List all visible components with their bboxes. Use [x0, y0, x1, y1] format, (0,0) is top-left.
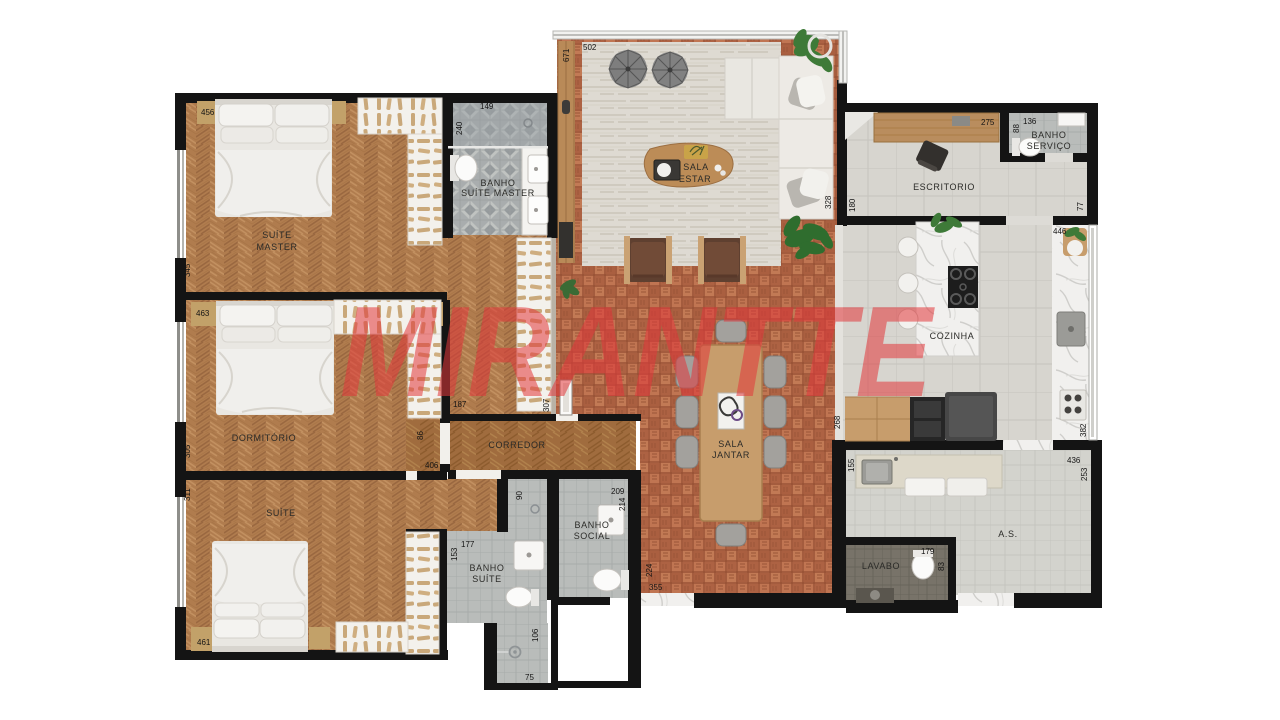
- svg-text:155: 155: [847, 458, 856, 472]
- svg-text:214: 214: [618, 497, 627, 511]
- svg-text:461: 461: [197, 638, 211, 647]
- svg-text:DORMITÓRIO: DORMITÓRIO: [232, 433, 297, 443]
- svg-text:SALA: SALA: [683, 162, 708, 172]
- svg-text:SOCIAL: SOCIAL: [574, 531, 611, 541]
- svg-text:671: 671: [562, 48, 571, 62]
- svg-text:436: 436: [1067, 456, 1081, 465]
- svg-text:MASTER: MASTER: [256, 242, 297, 252]
- svg-text:A.S.: A.S.: [998, 529, 1017, 539]
- svg-text:305: 305: [183, 444, 192, 458]
- svg-text:83: 83: [937, 562, 946, 571]
- svg-text:382: 382: [1079, 423, 1088, 437]
- svg-text:SUÍTE: SUÍTE: [262, 230, 292, 240]
- svg-text:253: 253: [1080, 467, 1089, 481]
- svg-text:SERVIÇO: SERVIÇO: [1027, 141, 1072, 151]
- svg-text:ESCRITORIO: ESCRITORIO: [913, 182, 975, 192]
- svg-text:JANTAR: JANTAR: [712, 450, 750, 460]
- svg-text:240: 240: [455, 121, 464, 135]
- svg-text:209: 209: [611, 487, 625, 496]
- svg-text:LAVABO: LAVABO: [862, 561, 900, 571]
- svg-text:153: 153: [450, 547, 459, 561]
- svg-text:275: 275: [981, 118, 995, 127]
- svg-text:SALA: SALA: [718, 439, 743, 449]
- svg-text:345: 345: [183, 263, 192, 277]
- svg-text:136: 136: [1023, 117, 1037, 126]
- svg-text:BANHO: BANHO: [469, 563, 504, 573]
- svg-text:86: 86: [416, 431, 425, 440]
- svg-text:179: 179: [921, 547, 935, 556]
- svg-text:88: 88: [1012, 124, 1021, 133]
- svg-text:355: 355: [649, 583, 663, 592]
- svg-text:446: 446: [1053, 227, 1067, 236]
- svg-text:406: 406: [425, 461, 439, 470]
- svg-text:311: 311: [183, 488, 192, 501]
- svg-text:SUÍTE: SUÍTE: [472, 574, 502, 584]
- svg-text:149: 149: [480, 102, 494, 111]
- svg-text:502: 502: [583, 43, 597, 52]
- svg-text:328: 328: [824, 195, 833, 209]
- svg-text:177: 177: [461, 540, 475, 549]
- svg-text:BANHO: BANHO: [480, 178, 515, 188]
- svg-text:463: 463: [196, 309, 210, 318]
- svg-text:77: 77: [1076, 202, 1085, 211]
- svg-text:SUÍTE MASTER: SUÍTE MASTER: [461, 188, 535, 198]
- svg-text:75: 75: [525, 673, 534, 682]
- svg-text:90: 90: [515, 491, 524, 500]
- svg-text:SUÍTE: SUÍTE: [266, 508, 296, 518]
- svg-text:106: 106: [531, 628, 540, 642]
- svg-text:BANHO: BANHO: [1031, 130, 1066, 140]
- svg-text:ESTAR: ESTAR: [679, 174, 711, 184]
- svg-text:CORREDOR: CORREDOR: [488, 440, 545, 450]
- svg-text:MIRANTTE: MIRANTTE: [340, 280, 936, 424]
- svg-text:456: 456: [201, 108, 215, 117]
- svg-text:224: 224: [645, 563, 654, 577]
- svg-text:180: 180: [848, 198, 857, 212]
- svg-text:COZINHA: COZINHA: [930, 331, 975, 341]
- svg-text:BANHO: BANHO: [574, 520, 609, 530]
